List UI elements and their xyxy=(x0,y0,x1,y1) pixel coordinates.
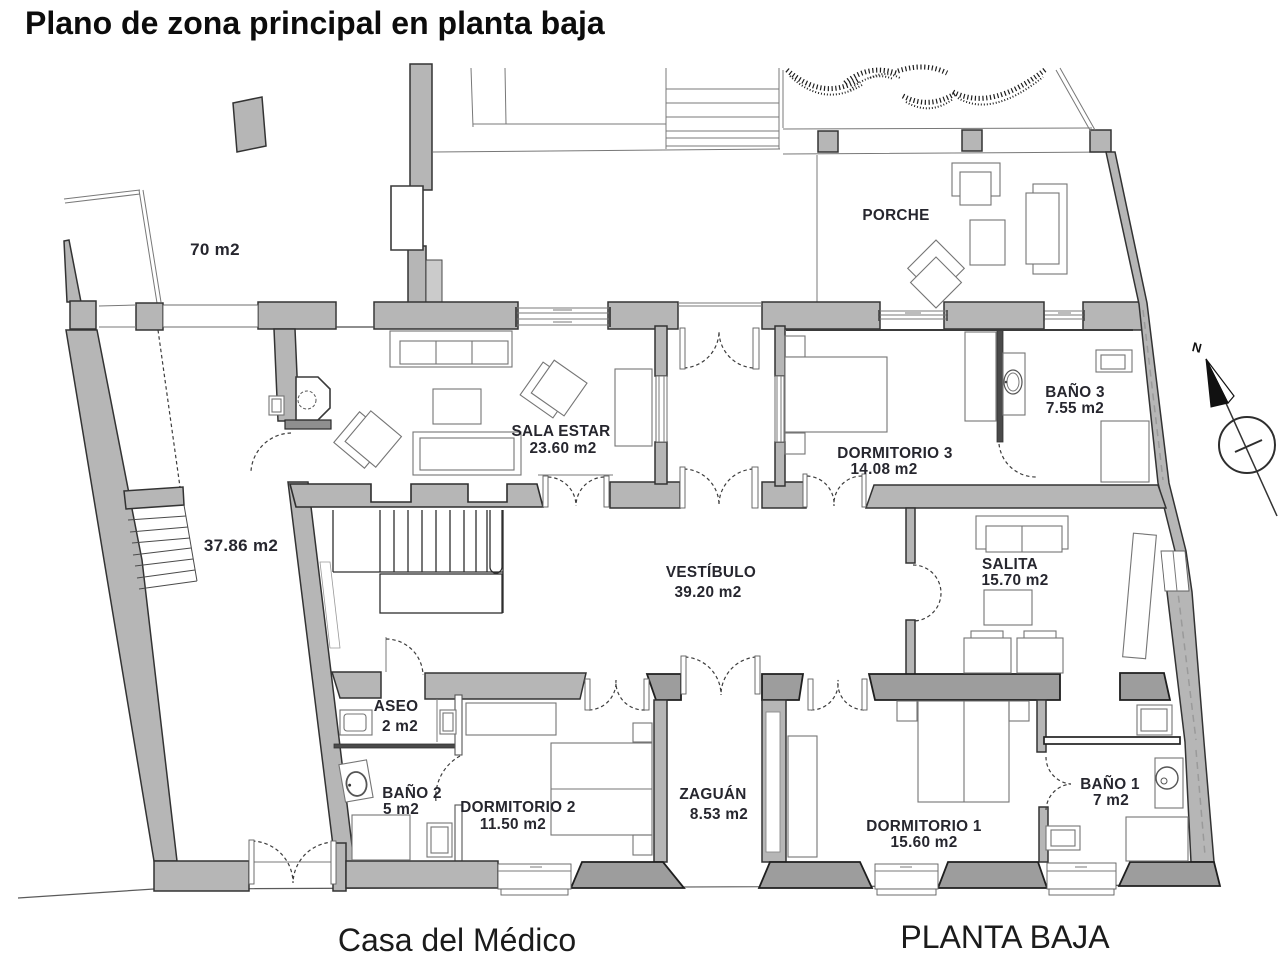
svg-text:BAÑO 2: BAÑO 2 xyxy=(382,784,442,802)
svg-text:70 m2: 70 m2 xyxy=(190,240,240,259)
svg-text:39.20 m2: 39.20 m2 xyxy=(674,584,741,601)
svg-text:37.86 m2: 37.86 m2 xyxy=(204,536,278,555)
svg-text:DORMITORIO 1: DORMITORIO 1 xyxy=(866,818,982,835)
svg-text:15.70 m2: 15.70 m2 xyxy=(981,572,1048,589)
svg-text:SALITA: SALITA xyxy=(982,556,1038,573)
svg-text:ASEO: ASEO xyxy=(374,698,419,715)
svg-text:BAÑO 3: BAÑO 3 xyxy=(1045,383,1105,401)
svg-text:11.50 m2: 11.50 m2 xyxy=(480,816,546,833)
svg-text:Plano de zona principal en pla: Plano de zona principal en planta baja xyxy=(25,5,605,41)
svg-text:VESTÍBULO: VESTÍBULO xyxy=(666,564,756,581)
svg-text:ZAGUÁN: ZAGUÁN xyxy=(679,786,746,803)
svg-text:14.08 m2: 14.08 m2 xyxy=(850,461,917,478)
svg-text:PLANTA BAJA: PLANTA BAJA xyxy=(900,919,1110,955)
svg-text:SALA ESTAR: SALA ESTAR xyxy=(511,423,610,440)
svg-text:5 m2: 5 m2 xyxy=(383,801,419,818)
svg-text:DORMITORIO 3: DORMITORIO 3 xyxy=(837,445,953,462)
svg-text:2 m2: 2 m2 xyxy=(382,718,418,735)
svg-text:23.60 m2: 23.60 m2 xyxy=(529,440,596,457)
svg-text:BAÑO 1: BAÑO 1 xyxy=(1080,775,1140,793)
svg-text:7.55 m2: 7.55 m2 xyxy=(1046,400,1104,417)
svg-text:DORMITORIO 2: DORMITORIO 2 xyxy=(460,799,576,816)
svg-text:Casa del Médico: Casa del Médico xyxy=(338,922,576,958)
svg-text:7 m2: 7 m2 xyxy=(1093,792,1129,809)
svg-text:15.60 m2: 15.60 m2 xyxy=(890,834,957,851)
svg-text:8.53 m2: 8.53 m2 xyxy=(690,806,748,823)
svg-text:PORCHE: PORCHE xyxy=(862,207,929,224)
